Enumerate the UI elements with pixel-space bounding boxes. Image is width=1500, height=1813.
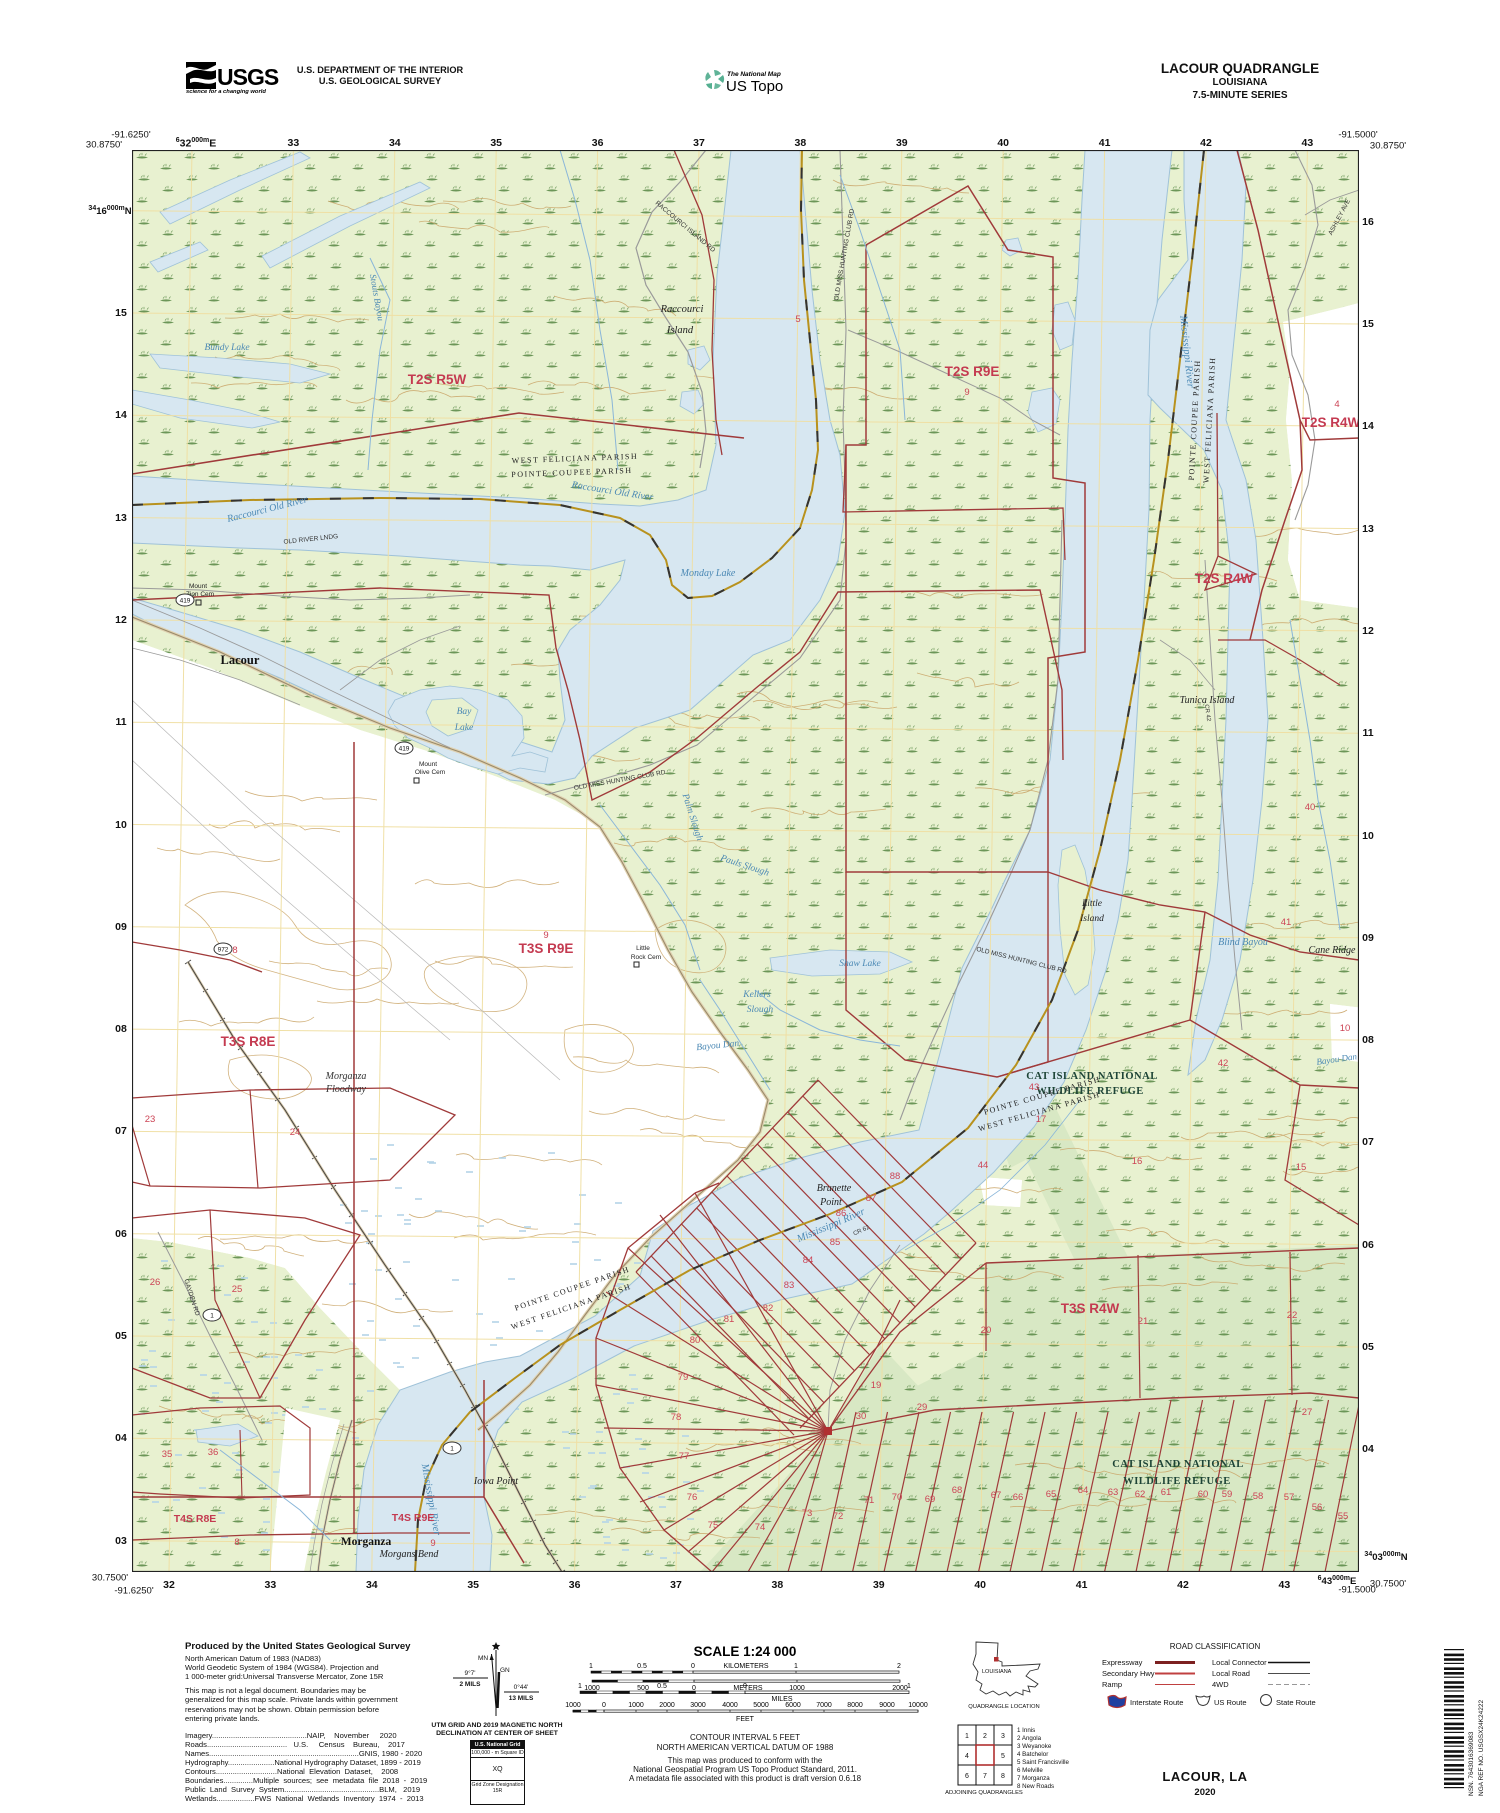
svg-text:Slough: Slough bbox=[747, 1005, 774, 1015]
svg-text:Point: Point bbox=[819, 1197, 842, 1208]
svg-text:10000: 10000 bbox=[908, 1702, 928, 1709]
svg-text:10: 10 bbox=[1340, 1023, 1351, 1034]
svg-text:972: 972 bbox=[218, 947, 229, 954]
svg-text:Island: Island bbox=[1079, 914, 1104, 924]
svg-text:0: 0 bbox=[691, 1663, 695, 1670]
svg-text:9: 9 bbox=[430, 1538, 435, 1549]
svg-text:2 Angola: 2 Angola bbox=[1017, 1735, 1042, 1742]
svg-text:MN: MN bbox=[478, 1655, 488, 1662]
svg-text:Lacour: Lacour bbox=[221, 653, 260, 667]
svg-text:6: 6 bbox=[965, 1773, 969, 1780]
svg-text:8: 8 bbox=[232, 945, 237, 956]
svg-text:72: 72 bbox=[833, 1511, 844, 1522]
svg-text:T3S R9E: T3S R9E bbox=[519, 941, 574, 956]
svg-text:0: 0 bbox=[602, 1702, 606, 1709]
svg-text:62: 62 bbox=[1135, 1489, 1146, 1500]
svg-text:Cane Ridge: Cane Ridge bbox=[1309, 945, 1356, 956]
svg-text:85: 85 bbox=[830, 1237, 841, 1248]
svg-text:19: 19 bbox=[871, 1380, 882, 1391]
svg-text:US Topo: US Topo bbox=[726, 78, 783, 95]
svg-text:86: 86 bbox=[836, 1208, 847, 1219]
svg-text:GN: GN bbox=[500, 1667, 510, 1674]
svg-text:64: 64 bbox=[1078, 1485, 1089, 1496]
svg-text:Lake: Lake bbox=[454, 723, 473, 733]
svg-text:Mount: Mount bbox=[419, 761, 437, 768]
svg-text:22: 22 bbox=[1287, 1310, 1298, 1321]
svg-text:1: 1 bbox=[794, 1663, 798, 1670]
svg-text:FEET: FEET bbox=[736, 1716, 755, 1723]
svg-text:2000: 2000 bbox=[659, 1702, 675, 1709]
svg-text:1: 1 bbox=[450, 1446, 454, 1453]
svg-text:5: 5 bbox=[1001, 1753, 1005, 1760]
svg-text:70: 70 bbox=[892, 1492, 903, 1503]
svg-text:Morganza: Morganza bbox=[325, 1071, 367, 1082]
svg-text:35: 35 bbox=[162, 1449, 173, 1460]
svg-text:Bay: Bay bbox=[457, 707, 473, 717]
svg-text:81: 81 bbox=[724, 1314, 735, 1325]
svg-text:17: 17 bbox=[1036, 1114, 1047, 1125]
svg-text:4000: 4000 bbox=[722, 1702, 738, 1709]
svg-text:2 MILS: 2 MILS bbox=[460, 1681, 482, 1688]
svg-text:4 Batchelor: 4 Batchelor bbox=[1017, 1751, 1048, 1758]
svg-text:US Route: US Route bbox=[1214, 1698, 1247, 1707]
svg-text:Shaw Lake: Shaw Lake bbox=[839, 959, 880, 969]
svg-text:7 Morganza: 7 Morganza bbox=[1017, 1775, 1050, 1782]
svg-text:SCALE 1:24 000: SCALE 1:24 000 bbox=[694, 1644, 797, 1659]
svg-text:6000: 6000 bbox=[785, 1702, 801, 1709]
svg-text:419: 419 bbox=[399, 746, 410, 753]
svg-text:Iowa Point: Iowa Point bbox=[473, 1476, 518, 1487]
svg-text:87: 87 bbox=[866, 1193, 877, 1204]
svg-text:56: 56 bbox=[1312, 1502, 1323, 1513]
svg-text:36: 36 bbox=[208, 1447, 219, 1458]
svg-text:Interstate Route: Interstate Route bbox=[1130, 1698, 1183, 1707]
svg-text:1: 1 bbox=[965, 1733, 969, 1740]
svg-text:5: 5 bbox=[795, 314, 800, 325]
svg-text:Blind Bayou: Blind Bayou bbox=[1218, 937, 1268, 948]
svg-text:69: 69 bbox=[925, 1494, 936, 1505]
svg-text:T4S R9E: T4S R9E bbox=[392, 1512, 435, 1524]
svg-text:Expressway: Expressway bbox=[1102, 1658, 1143, 1667]
svg-text:Brunette: Brunette bbox=[817, 1183, 852, 1194]
svg-text:5000: 5000 bbox=[753, 1702, 769, 1709]
svg-text:0.5: 0.5 bbox=[657, 1683, 667, 1690]
svg-text:67: 67 bbox=[991, 1490, 1002, 1501]
svg-text:1000: 1000 bbox=[565, 1702, 581, 1709]
svg-text:25: 25 bbox=[232, 1284, 243, 1295]
svg-text:42: 42 bbox=[1218, 1058, 1229, 1069]
svg-text:T2S R4W: T2S R4W bbox=[1302, 415, 1359, 430]
svg-text:84: 84 bbox=[803, 1255, 814, 1266]
svg-text:T2S R4W: T2S R4W bbox=[1195, 571, 1254, 586]
svg-text:T2S R5W: T2S R5W bbox=[408, 372, 467, 387]
svg-text:9: 9 bbox=[964, 387, 969, 398]
svg-text:59: 59 bbox=[1222, 1489, 1233, 1500]
svg-text:2: 2 bbox=[897, 1663, 901, 1670]
svg-text:68: 68 bbox=[952, 1485, 963, 1496]
svg-text:State Route: State Route bbox=[1276, 1698, 1316, 1707]
svg-text:4WD: 4WD bbox=[1212, 1680, 1229, 1689]
svg-text:Floodway: Floodway bbox=[325, 1084, 367, 1095]
svg-text:9°7': 9°7' bbox=[464, 1669, 475, 1677]
svg-text:Morgans Bend: Morgans Bend bbox=[379, 1549, 440, 1560]
svg-text:T3S R8E: T3S R8E bbox=[221, 1034, 276, 1049]
svg-text:30: 30 bbox=[856, 1411, 867, 1422]
svg-text:16: 16 bbox=[1132, 1156, 1143, 1167]
svg-text:4: 4 bbox=[965, 1753, 969, 1760]
svg-text:T4S R8E: T4S R8E bbox=[174, 1513, 217, 1525]
svg-text:80: 80 bbox=[690, 1335, 701, 1346]
svg-text:USGS: USGS bbox=[217, 64, 279, 90]
svg-text:science for a changing world: science for a changing world bbox=[186, 89, 266, 95]
svg-text:Morganza: Morganza bbox=[341, 1536, 392, 1548]
svg-text:58: 58 bbox=[1253, 1491, 1264, 1502]
svg-text:0.5: 0.5 bbox=[637, 1663, 647, 1670]
svg-text:75: 75 bbox=[708, 1520, 719, 1531]
svg-text:3000: 3000 bbox=[690, 1702, 706, 1709]
svg-text:6 Melville: 6 Melville bbox=[1017, 1767, 1043, 1774]
svg-text:Little: Little bbox=[1081, 899, 1102, 909]
svg-text:63: 63 bbox=[1108, 1487, 1119, 1498]
svg-text:1: 1 bbox=[210, 1313, 214, 1320]
svg-text:26: 26 bbox=[150, 1277, 161, 1288]
svg-text:Local Road: Local Road bbox=[1212, 1669, 1250, 1678]
svg-text:74: 74 bbox=[755, 1522, 766, 1533]
svg-text:7000: 7000 bbox=[816, 1702, 832, 1709]
svg-text:Ramp: Ramp bbox=[1102, 1680, 1122, 1689]
svg-text:T2S R9E: T2S R9E bbox=[945, 364, 1000, 379]
svg-text:73: 73 bbox=[802, 1508, 813, 1519]
svg-text:5 Saint Francisville: 5 Saint Francisville bbox=[1017, 1759, 1069, 1766]
svg-text:1: 1 bbox=[578, 1683, 582, 1690]
svg-text:8: 8 bbox=[234, 1537, 239, 1548]
svg-text:Bundy Lake: Bundy Lake bbox=[204, 343, 249, 353]
svg-text:Rock Cem: Rock Cem bbox=[631, 954, 661, 961]
svg-text:8: 8 bbox=[1001, 1773, 1005, 1780]
svg-text:44: 44 bbox=[978, 1160, 989, 1171]
svg-text:13 MILS: 13 MILS bbox=[509, 1695, 534, 1702]
svg-text:419: 419 bbox=[180, 598, 191, 605]
svg-text:41: 41 bbox=[1281, 917, 1292, 928]
svg-text:9000: 9000 bbox=[879, 1702, 895, 1709]
svg-text:1: 1 bbox=[589, 1663, 593, 1670]
svg-text:78: 78 bbox=[671, 1412, 682, 1423]
svg-text:Raccourci: Raccourci bbox=[660, 304, 704, 315]
svg-text:7: 7 bbox=[983, 1773, 987, 1780]
svg-text:57: 57 bbox=[1284, 1492, 1295, 1503]
svg-text:23: 23 bbox=[145, 1114, 156, 1125]
svg-text:88: 88 bbox=[890, 1171, 901, 1182]
svg-text:0: 0 bbox=[743, 1683, 747, 1690]
svg-text:24: 24 bbox=[290, 1127, 301, 1138]
svg-text:1000: 1000 bbox=[628, 1702, 644, 1709]
svg-text:9: 9 bbox=[543, 930, 548, 941]
svg-text:15: 15 bbox=[1296, 1162, 1307, 1173]
svg-text:T3S R4W: T3S R4W bbox=[1061, 1301, 1120, 1316]
svg-text:27: 27 bbox=[1302, 1407, 1313, 1418]
svg-text:61: 61 bbox=[1161, 1487, 1172, 1498]
svg-text:Island: Island bbox=[666, 325, 694, 336]
svg-text:The National Map: The National Map bbox=[727, 71, 781, 78]
svg-text:43: 43 bbox=[1029, 1082, 1040, 1093]
svg-text:3: 3 bbox=[1001, 1733, 1005, 1740]
svg-text:Olive Cem: Olive Cem bbox=[415, 769, 445, 776]
svg-text:40: 40 bbox=[1305, 802, 1316, 813]
svg-text:Secondary Hwy: Secondary Hwy bbox=[1102, 1669, 1155, 1678]
svg-text:82: 82 bbox=[763, 1303, 774, 1314]
svg-text:0°44': 0°44' bbox=[514, 1683, 529, 1691]
svg-text:76: 76 bbox=[687, 1492, 698, 1503]
svg-text:60: 60 bbox=[1198, 1489, 1209, 1500]
svg-text:LOUISIANA: LOUISIANA bbox=[982, 1669, 1012, 1675]
svg-text:WILDLIFE REFUGE: WILDLIFE REFUGE bbox=[1123, 1476, 1231, 1487]
svg-text:8 New Roads: 8 New Roads bbox=[1017, 1783, 1054, 1790]
svg-text:3 Weyanoke: 3 Weyanoke bbox=[1017, 1743, 1052, 1750]
svg-text:29: 29 bbox=[917, 1402, 928, 1413]
svg-text:8000: 8000 bbox=[847, 1702, 863, 1709]
svg-text:55: 55 bbox=[1338, 1511, 1349, 1522]
svg-text:77: 77 bbox=[679, 1451, 690, 1462]
svg-text:Mount: Mount bbox=[189, 583, 207, 590]
svg-text:KILOMETERS: KILOMETERS bbox=[723, 1663, 768, 1670]
svg-text:66: 66 bbox=[1013, 1492, 1024, 1503]
svg-text:71: 71 bbox=[864, 1495, 875, 1506]
svg-text:Kellers: Kellers bbox=[742, 990, 771, 1000]
svg-text:21: 21 bbox=[1138, 1316, 1149, 1327]
svg-text:Little: Little bbox=[636, 945, 650, 952]
svg-text:79: 79 bbox=[678, 1372, 689, 1383]
svg-text:Local Connector: Local Connector bbox=[1212, 1658, 1267, 1667]
svg-text:83: 83 bbox=[784, 1280, 795, 1291]
svg-text:Monday Lake: Monday Lake bbox=[680, 568, 736, 579]
svg-text:2: 2 bbox=[983, 1733, 987, 1740]
svg-text:65: 65 bbox=[1046, 1489, 1057, 1500]
svg-text:20: 20 bbox=[981, 1325, 992, 1336]
svg-text:1: 1 bbox=[907, 1683, 911, 1690]
svg-text:4: 4 bbox=[1334, 399, 1339, 410]
svg-text:CAT ISLAND NATIONAL: CAT ISLAND NATIONAL bbox=[1112, 1459, 1243, 1470]
svg-text:1 Innis: 1 Innis bbox=[1017, 1727, 1035, 1734]
